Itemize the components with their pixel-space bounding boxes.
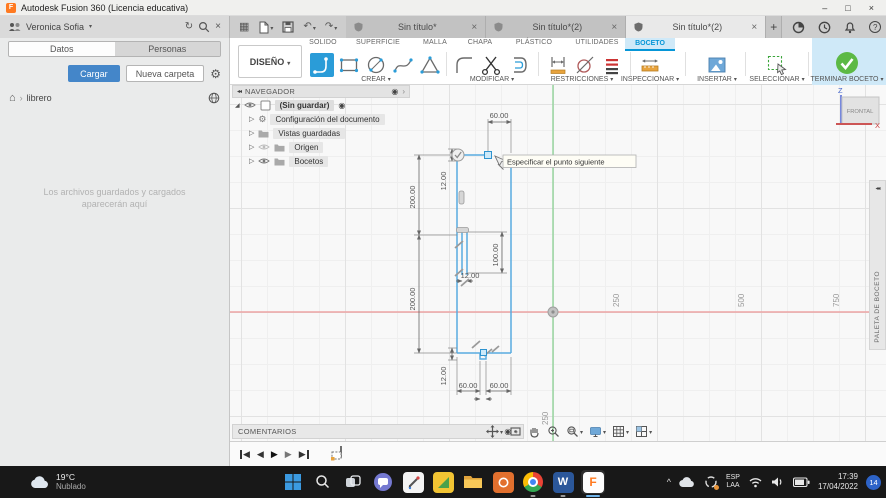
spline-tool[interactable] (391, 53, 415, 77)
tab-solido[interactable]: SOLIDO (309, 39, 337, 46)
navigator-item-label: Origen (289, 142, 323, 153)
chevron-down-icon (580, 426, 583, 436)
measure-tool[interactable] (638, 53, 662, 77)
circle-tool[interactable] (364, 53, 388, 77)
rectangle-tool[interactable] (337, 53, 361, 77)
ruler-label: 500 (737, 293, 746, 307)
user-name[interactable]: Veronica Sofia (26, 22, 84, 32)
navigator-panel: ◂◂ NAVEGADOR ◉ › ◢ (Sin guardar) ◉ ▷ ⚙ C… (232, 85, 410, 168)
tooltip-text: Especificar el punto siguiente (507, 158, 605, 167)
ruler-label: 750 (832, 293, 841, 307)
tab-utilidades[interactable]: UTILIDADES (575, 39, 618, 46)
chevron-down-icon (880, 76, 883, 83)
file-explorer-icon[interactable] (461, 470, 485, 494)
timeline-begin-icon[interactable]: ◀ (240, 450, 250, 459)
terminar-boceto-button[interactable] (834, 51, 858, 75)
gear-icon: ⚙ (258, 114, 266, 125)
dim-lower-left[interactable]: 200.00 (408, 288, 417, 311)
canvas-navigation-toolbar (486, 423, 652, 439)
comments-title: COMENTARIOS (238, 427, 500, 436)
taskbar: 19°C Nublado W F ^ ESP (0, 466, 886, 498)
dim-top-wall[interactable]: 12.00 (439, 172, 448, 191)
language-indicator[interactable]: ESP LAA (726, 474, 740, 490)
offset-tool[interactable] (506, 53, 530, 77)
orange-app-icon[interactable] (491, 470, 515, 494)
tab-boceto-active[interactable]: BOCETO (625, 38, 675, 51)
undo-icon: ↶ (303, 22, 311, 32)
header-right-icons: ? (782, 16, 886, 38)
search-icon[interactable] (198, 21, 210, 33)
minimize-icon[interactable]: – (822, 3, 827, 13)
zoom-tool[interactable] (547, 425, 560, 438)
yellow-app-icon[interactable] (431, 470, 455, 494)
task-view-icon[interactable] (341, 470, 365, 494)
home-icon[interactable]: ⌂ (9, 92, 16, 104)
timeline-sketch-marker[interactable] (330, 445, 346, 463)
group-inspeccionar[interactable]: INSPECCIONAR (621, 76, 679, 83)
tab-personas[interactable]: Personas (115, 42, 221, 56)
collapse-panel-icon[interactable]: ◂◂ (237, 88, 241, 95)
group-crear[interactable]: CREAR (361, 76, 391, 83)
dim-top[interactable]: 60.00 (490, 111, 509, 120)
chevron-down-icon (676, 76, 679, 83)
orbit-hand-tool[interactable] (528, 425, 541, 438)
timeline-step-back-icon[interactable]: ◀ (257, 450, 264, 459)
expand-icon[interactable]: ▷ (249, 143, 254, 151)
sketch-point[interactable] (481, 350, 487, 356)
wifi-icon[interactable] (748, 476, 763, 488)
view-cube[interactable]: FRONTAL Z X (836, 86, 880, 130)
timeline-bar: ◀ ◀ ▶ ▶ ▶ (230, 441, 886, 466)
chevron-down-icon (287, 57, 290, 67)
ribbon: SOLIDO SUPERFICIE MALLA CHAPA PLÁSTICO U… (230, 38, 886, 85)
doc-tab-1[interactable]: Sin título* × (346, 16, 486, 38)
nueva-carpeta-button[interactable]: Nueva carpeta (126, 65, 205, 82)
clock-icon[interactable] (818, 21, 831, 34)
bell-icon[interactable] (844, 21, 856, 34)
chevron-down-icon (802, 76, 805, 83)
fillet-tool[interactable] (452, 53, 476, 77)
hidden-icons-chevron[interactable]: ^ (667, 477, 671, 487)
breadcrumb[interactable]: librero (27, 93, 52, 103)
document-tabs: Sin título* × Sin título*(2) × Sin títul… (346, 16, 782, 38)
navigator-item-label: Configuración del documento (270, 114, 384, 125)
expand-icon[interactable]: ▷ (249, 157, 254, 165)
doc-tab-2[interactable]: Sin título*(2) × (486, 16, 626, 38)
refresh-icon[interactable]: ↻ (185, 22, 193, 32)
breadcrumb-separator: › (20, 93, 23, 103)
pen-app-icon[interactable] (401, 470, 425, 494)
fusion-logo-icon: F (6, 3, 16, 13)
clock-date: 17/04/2022 (818, 482, 858, 492)
system-tray: ^ ESP LAA 17:39 17/04/2022 14 (667, 466, 881, 498)
polygon-tool[interactable] (418, 53, 442, 77)
select-tool[interactable] (765, 53, 789, 77)
battery-icon[interactable] (793, 477, 810, 488)
taskbar-apps: W F (281, 466, 605, 498)
insert-image-tool[interactable] (705, 53, 729, 77)
doc-tab-label: Sin título*(2) (648, 22, 746, 32)
clock-time: 17:39 (818, 472, 858, 482)
chevron-down-icon[interactable]: ▾ (89, 24, 92, 30)
chevron-down-icon (511, 76, 514, 83)
close-tab-icon[interactable]: × (471, 22, 477, 33)
dim-bottom-wall[interactable]: 12.00 (439, 367, 448, 386)
group-seleccionar[interactable]: SELECCIONAR (749, 76, 804, 83)
dim-upper-left[interactable]: 200.00 (408, 186, 417, 209)
folder-icon (274, 143, 285, 152)
dim-slot-width[interactable]: 12.00 (461, 271, 480, 280)
group-restricciones[interactable]: RESTRICCIONES (551, 76, 614, 83)
expand-icon[interactable]: ▷ (249, 129, 254, 137)
radio-icon[interactable]: ◉ (338, 101, 345, 110)
navigator-item-doc-settings[interactable]: ▷ ⚙ Configuración del documento (232, 112, 410, 126)
document-shield-icon (494, 22, 503, 32)
data-panel: Datos Personas Cargar Nueva carpeta ⚙ ⌂ … (0, 38, 230, 466)
document-shield-icon (354, 22, 363, 32)
clock-widget[interactable]: 17:39 17/04/2022 (818, 472, 858, 491)
tab-plastico[interactable]: PLÁSTICO (516, 39, 552, 46)
group-modificar[interactable]: MODIFICAR (470, 76, 514, 83)
pan-tool[interactable] (486, 425, 503, 438)
weather-desc: Nublado (56, 482, 86, 491)
expand-icon[interactable]: ▷ (249, 115, 254, 123)
root-corner-icon: ◢ (235, 102, 240, 109)
job-status-icon[interactable] (792, 21, 805, 34)
zoom-window-tool[interactable] (566, 425, 583, 438)
diseno-dropdown[interactable]: DISEÑO (238, 45, 302, 78)
close-icon[interactable]: × (869, 3, 874, 13)
folder-icon (274, 157, 285, 166)
taskbar-search-icon[interactable] (311, 470, 335, 494)
close-tab-icon[interactable]: × (611, 22, 617, 33)
sketch-canvas[interactable]: 250 500 750 250 (230, 85, 886, 441)
navigator-root-row[interactable]: ◢ (Sin guardar) ◉ (232, 98, 410, 112)
display-settings-tool[interactable] (589, 425, 606, 438)
sketch-point-active[interactable] (485, 152, 492, 159)
chevron-down-icon (734, 76, 737, 83)
tab-superficie[interactable]: SUPERFICIE (356, 39, 400, 46)
collapse-panel-icon[interactable]: ◂◂ (875, 185, 879, 192)
sketch-dimension-tool[interactable] (546, 53, 570, 77)
group-terminar-boceto[interactable]: TERMINAR BOCETO (811, 76, 884, 83)
navigator-item-origin[interactable]: ▷ Origen (232, 140, 410, 154)
undo-button[interactable]: ↶ (303, 22, 315, 32)
chevron-down-icon (610, 76, 613, 83)
chevron-down-icon (500, 426, 503, 436)
save-icon[interactable] (282, 21, 294, 33)
fusion360-window: F Autodesk Fusion 360 (Licencia educativ… (0, 0, 886, 498)
comments-bar[interactable]: COMENTARIOS ◉ › (232, 424, 524, 439)
group-insertar[interactable]: INSERTAR (697, 76, 737, 83)
file-icon (258, 21, 269, 34)
weather-temp: 19°C (56, 473, 86, 483)
empty-state-text: Los archivos guardados y cargados aparec… (30, 186, 199, 210)
line-tool-active[interactable] (310, 53, 334, 77)
maximize-icon[interactable]: □ (845, 3, 850, 13)
timeline-play-icon[interactable]: ▶ (271, 450, 278, 459)
tab-chapa[interactable]: CHAPA (468, 39, 493, 46)
gear-icon[interactable]: ⚙ (210, 67, 221, 81)
document-shield-icon (634, 22, 643, 32)
cargar-button[interactable]: Cargar (68, 65, 120, 82)
chrome-icon[interactable] (521, 470, 545, 494)
dim-slot-height[interactable]: 100.00 (491, 244, 500, 267)
navigator-item-label: Bocetos (289, 156, 328, 167)
word-icon[interactable]: W (551, 470, 575, 494)
window-title: Autodesk Fusion 360 (Licencia educativa) (21, 3, 188, 13)
navigator-item-saved-views[interactable]: ▷ Vistas guardadas (232, 126, 410, 140)
navigator-title: NAVEGADOR (245, 87, 387, 96)
folder-icon (258, 129, 269, 138)
axis-z-label: Z (838, 86, 843, 95)
user-zone: Veronica Sofia ▾ ↻ × (0, 16, 230, 38)
trim-scissors-tool[interactable] (479, 53, 503, 77)
grid-settings-tool[interactable] (612, 425, 629, 438)
root-doc-label[interactable]: (Sin guardar) (275, 100, 335, 111)
chevron-down-icon (388, 76, 391, 83)
file-menu-button[interactable] (258, 21, 273, 34)
teams-chat-icon[interactable] (371, 470, 395, 494)
sketch-profile[interactable] (457, 155, 511, 359)
close-panel-icon[interactable]: × (215, 22, 221, 32)
people-icon (8, 22, 21, 32)
onedrive-cloud-icon[interactable] (679, 476, 696, 488)
equal-constraint-tool[interactable] (600, 53, 624, 77)
timeline-end-icon[interactable]: ▶ (299, 450, 309, 459)
navigator-header[interactable]: ◂◂ NAVEGADOR ◉ › (232, 85, 410, 98)
doc-tab-label: Sin título* (368, 22, 466, 32)
app-header: Veronica Sofia ▾ ↻ × ▦ ↶ ↷ (0, 16, 886, 38)
filter-icon[interactable]: ◉ (391, 87, 398, 96)
diseno-label: DISEÑO (250, 57, 285, 67)
title-bar: F Autodesk Fusion 360 (Licencia educativ… (0, 0, 886, 16)
viewport-layout-tool[interactable] (635, 425, 652, 438)
eye-icon[interactable] (258, 143, 270, 151)
quick-access-toolbar: ▦ ↶ ↷ (230, 16, 346, 38)
new-tab-button[interactable]: + (766, 16, 782, 38)
ruler-label: 250 (612, 293, 621, 307)
eye-icon[interactable] (258, 157, 270, 165)
chevron-down-icon (334, 22, 337, 32)
axis-x-label: X (875, 121, 880, 130)
tangent-constraint-tool[interactable] (573, 53, 597, 77)
dim-bottom-right[interactable]: 60.00 (490, 381, 509, 390)
panel-arrow-icon[interactable]: › (402, 87, 405, 96)
origin-dot (551, 310, 554, 313)
chevron-down-icon (603, 426, 606, 436)
sketch-palette-title: PALETA DE BOCETO (874, 271, 881, 343)
timeline-step-forward-icon[interactable]: ▶ (285, 450, 292, 459)
fit-view-tool[interactable] (509, 425, 522, 438)
chevron-down-icon (270, 22, 273, 32)
navigator-item-sketches[interactable]: ▷ Bocetos (232, 154, 410, 168)
dim-bottom-left[interactable]: 60.00 (459, 381, 478, 390)
cloud-icon (30, 475, 50, 489)
start-button[interactable] (281, 470, 305, 494)
volume-icon[interactable] (771, 476, 785, 488)
doc-tab-label: Sin título*(2) (508, 22, 606, 32)
tab-datos[interactable]: Datos (9, 42, 115, 56)
navigator-item-label: Vistas guardadas (273, 128, 345, 139)
doc-tab-3-active[interactable]: Sin título*(2) × (626, 16, 766, 38)
close-tab-icon[interactable]: × (751, 22, 757, 33)
sync-status-icon[interactable] (704, 475, 718, 489)
help-icon[interactable]: ? (869, 21, 881, 33)
sketch-palette-collapsed[interactable]: ◂◂ PALETA DE BOCETO (869, 180, 886, 350)
notification-badge[interactable]: 14 (866, 475, 881, 490)
globe-icon[interactable] (208, 92, 220, 104)
tab-malla[interactable]: MALLA (423, 39, 447, 46)
redo-icon: ↷ (325, 22, 333, 32)
redo-button[interactable]: ↷ (325, 22, 337, 32)
chevron-down-icon (626, 426, 629, 436)
eye-icon[interactable] (244, 101, 256, 109)
chevron-down-icon (649, 426, 652, 436)
chevron-down-icon (313, 22, 316, 32)
document-box-icon (260, 100, 271, 111)
viewcube-face-label[interactable]: FRONTAL (847, 109, 874, 115)
weather-widget[interactable]: 19°C Nublado (30, 466, 86, 498)
fusion360-taskbar-icon[interactable]: F (581, 470, 605, 494)
app-grid-icon[interactable]: ▦ (239, 22, 249, 33)
